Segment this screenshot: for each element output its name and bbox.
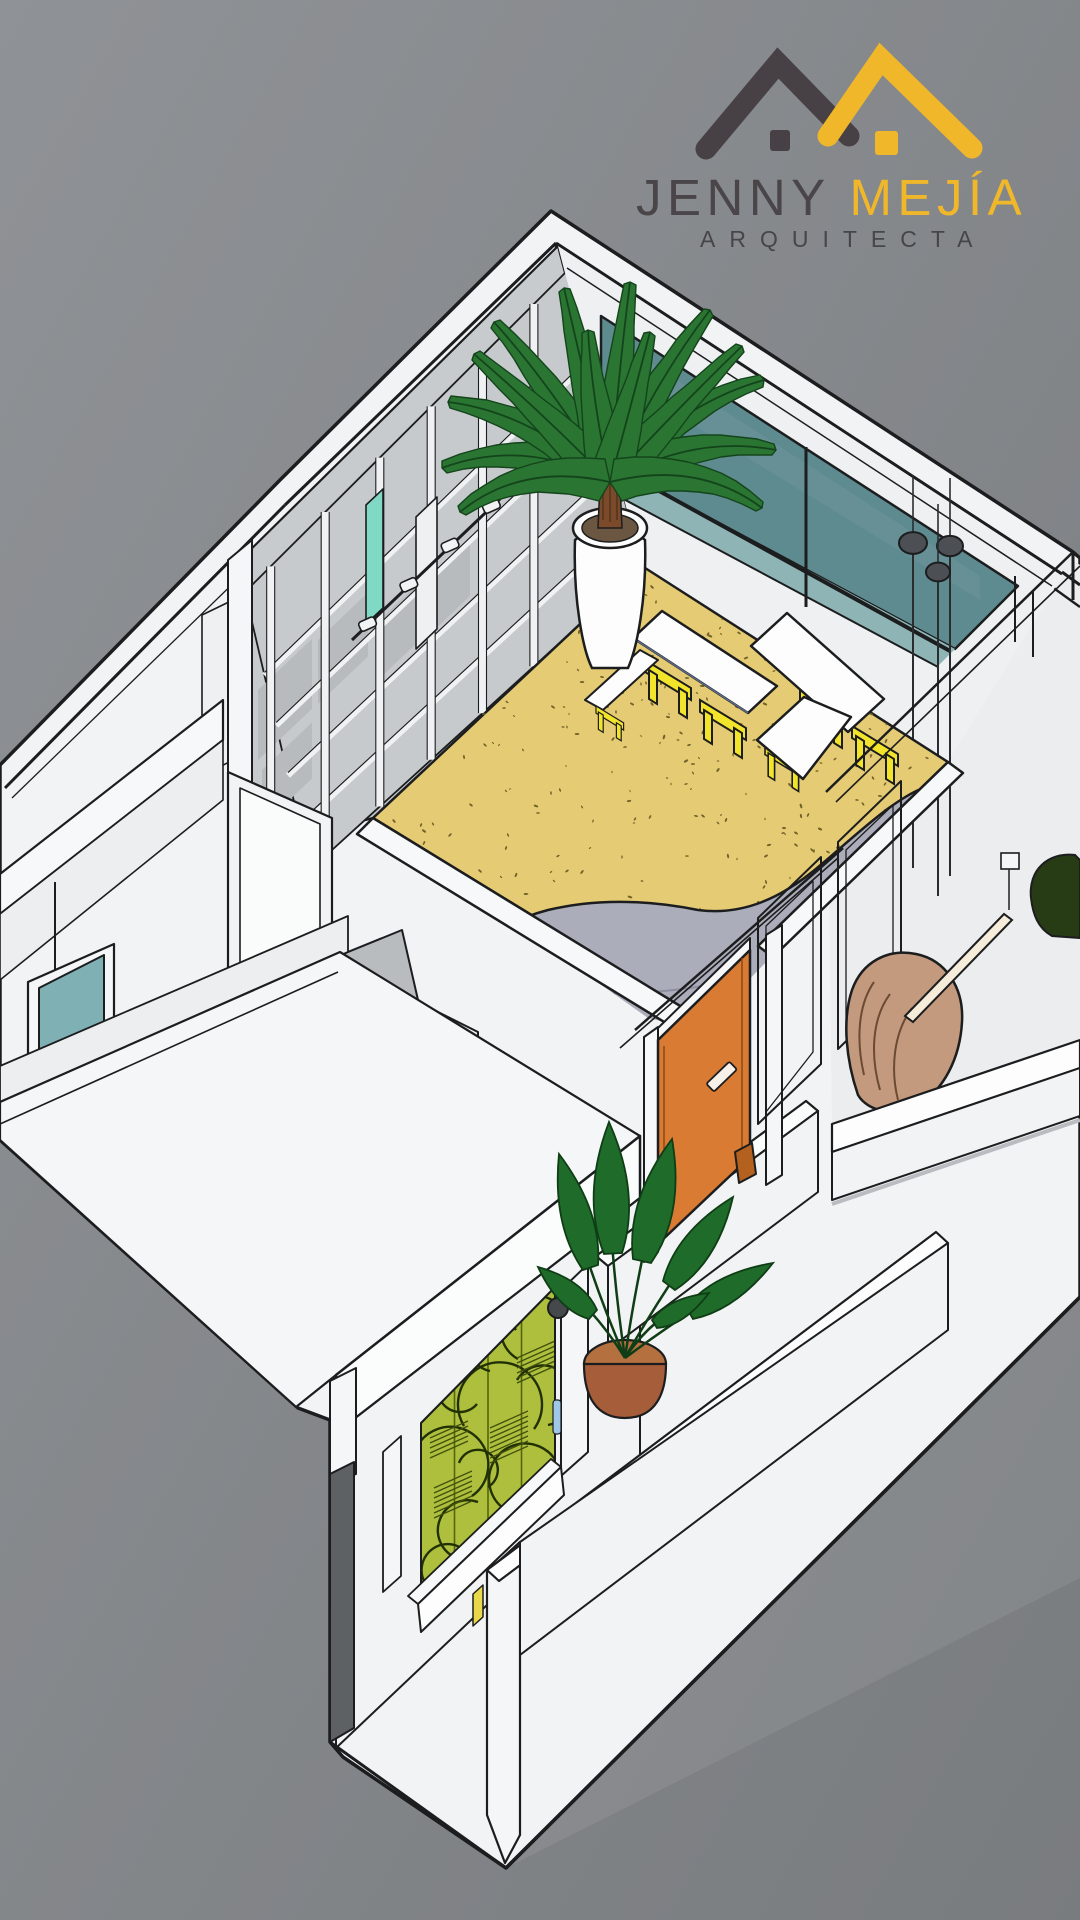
svg-text:JENNY MEJÍA: JENNY MEJÍA — [636, 169, 1027, 226]
svg-text:ARQUITECTA: ARQUITECTA — [700, 226, 987, 252]
